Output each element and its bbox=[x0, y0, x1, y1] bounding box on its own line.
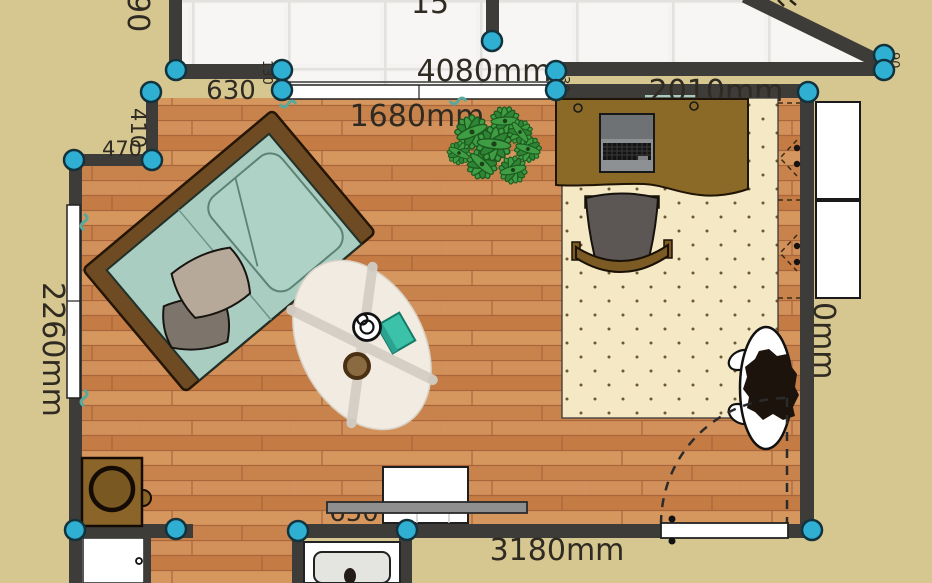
control-point[interactable] bbox=[142, 150, 162, 170]
control-point[interactable] bbox=[65, 520, 85, 540]
desk-grommet-icon bbox=[574, 104, 582, 112]
control-point[interactable] bbox=[141, 82, 161, 102]
shower[interactable] bbox=[304, 542, 400, 583]
dim-bottom-wall[interactable]: 3180mm bbox=[490, 533, 625, 568]
outside-cabinet[interactable] bbox=[816, 102, 860, 199]
desk-grommet-icon bbox=[690, 102, 698, 110]
control-point[interactable] bbox=[798, 82, 818, 102]
door-stop-dot bbox=[669, 516, 676, 523]
dim-630[interactable]: 630 bbox=[206, 76, 256, 106]
sideboard[interactable] bbox=[383, 467, 468, 523]
dim-410[interactable]: 410 bbox=[126, 108, 150, 148]
control-point[interactable] bbox=[802, 520, 822, 540]
bowl[interactable] bbox=[345, 354, 369, 378]
lower-left-door[interactable] bbox=[83, 538, 144, 583]
washing-machine[interactable] bbox=[82, 458, 151, 526]
control-point[interactable] bbox=[166, 60, 186, 80]
outside-cabinet[interactable] bbox=[816, 201, 860, 298]
control-point[interactable] bbox=[874, 60, 894, 80]
control-point[interactable] bbox=[482, 31, 502, 51]
control-point[interactable] bbox=[272, 80, 292, 100]
control-point[interactable] bbox=[546, 61, 566, 81]
control-point[interactable] bbox=[64, 150, 84, 170]
laptop[interactable] bbox=[600, 114, 654, 172]
control-point[interactable] bbox=[397, 520, 417, 540]
dim-left-wall[interactable]: 2260mm bbox=[35, 282, 70, 417]
dim-top-left-clipped[interactable]: 90 bbox=[120, 0, 155, 32]
wall-shelf[interactable] bbox=[327, 502, 527, 513]
door-stop-dot bbox=[669, 538, 676, 545]
control-point[interactable] bbox=[272, 60, 292, 80]
lower-divider-wall[interactable] bbox=[144, 538, 151, 583]
control-point[interactable] bbox=[288, 521, 308, 541]
floor-plan-canvas: 4080mm 2010mm 1680mm 630 470 410 2260mm … bbox=[0, 0, 932, 583]
control-point[interactable] bbox=[546, 80, 566, 100]
control-point[interactable] bbox=[166, 519, 186, 539]
dim-top-wall[interactable]: 4080mm bbox=[417, 54, 552, 89]
cup[interactable] bbox=[354, 314, 381, 341]
dim-right-wall-clipped[interactable]: 0mm bbox=[806, 302, 841, 380]
corridor-floor bbox=[148, 538, 292, 583]
dim-top-center-clipped[interactable]: 15 bbox=[411, 0, 449, 21]
